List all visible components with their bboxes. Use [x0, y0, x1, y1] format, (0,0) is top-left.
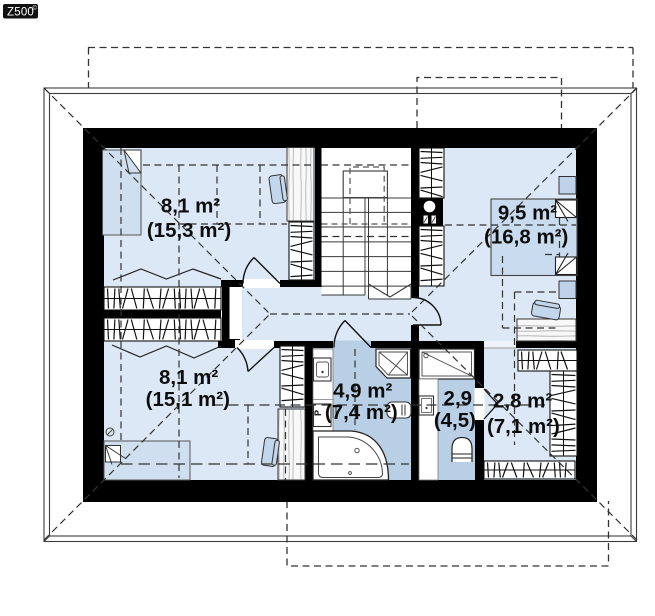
- svg-text:(15,1 m²): (15,1 m²): [146, 388, 230, 411]
- svg-text:2,9: 2,9: [444, 387, 473, 410]
- svg-text:(16,8 m²): (16,8 m²): [484, 226, 568, 249]
- svg-text:8,1 m²: 8,1 m²: [161, 195, 220, 218]
- svg-text:(15,3 m²): (15,3 m²): [147, 219, 231, 242]
- svg-text:2,8 m²: 2,8 m²: [493, 389, 552, 412]
- svg-text:8,1 m²: 8,1 m²: [159, 366, 218, 389]
- svg-text:9,5 m²: 9,5 m²: [498, 202, 557, 225]
- svg-text:©: ©: [33, 5, 38, 12]
- svg-text:(4,5): (4,5): [434, 409, 476, 432]
- svg-text:(7,1 m²): (7,1 m²): [487, 415, 560, 438]
- svg-text:Z500: Z500: [7, 7, 34, 19]
- svg-text:4,9 m²: 4,9 m²: [333, 380, 392, 403]
- svg-text:P: P: [313, 410, 323, 416]
- svg-text:(7,4 m²): (7,4 m²): [325, 401, 398, 424]
